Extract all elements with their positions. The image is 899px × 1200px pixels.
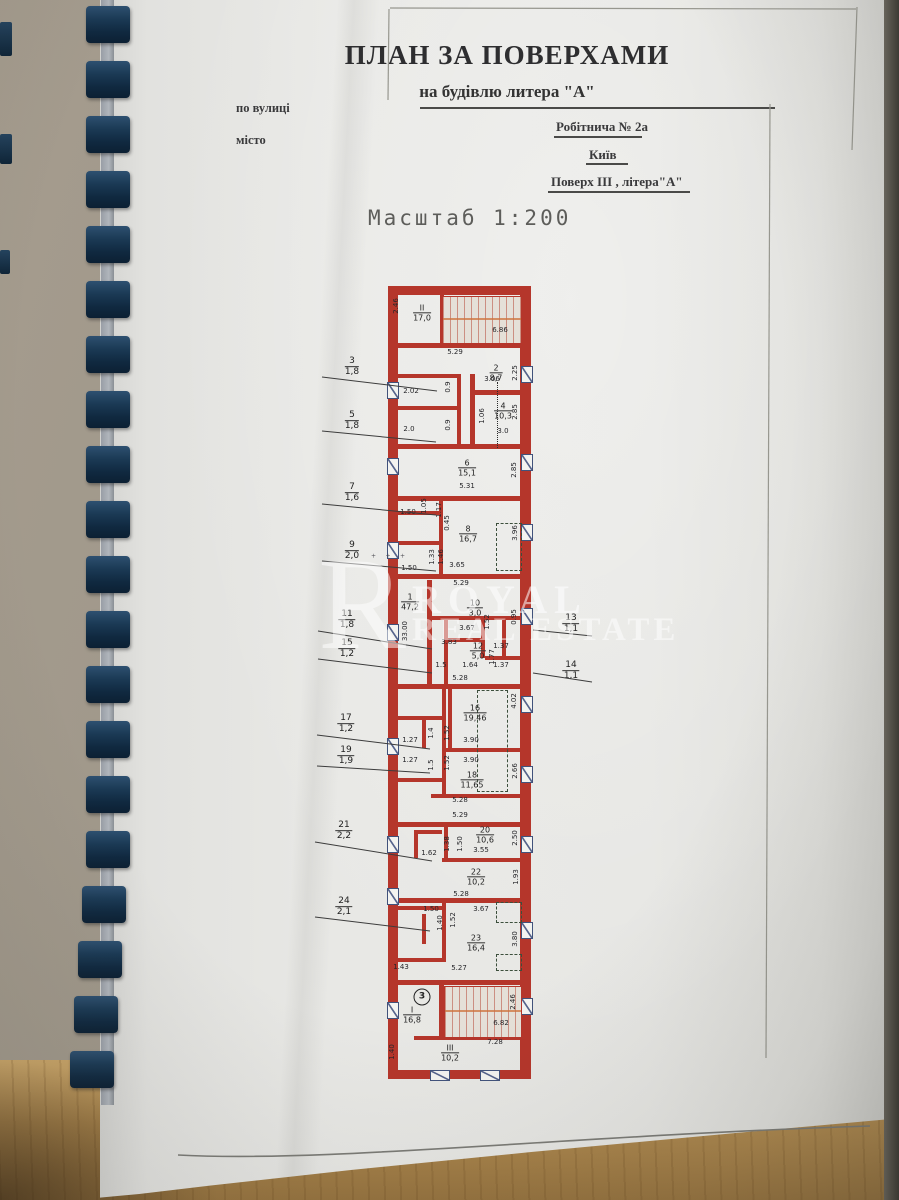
- dimension-label: 3.67: [473, 905, 489, 913]
- dimension-label: 3.90: [463, 756, 479, 764]
- wall-segment: [397, 374, 461, 378]
- room-label: ІІІ10,2: [441, 1043, 459, 1062]
- dimension-label-vertical: 2.25: [511, 365, 519, 381]
- room-number: ІІ: [413, 303, 431, 313]
- dimension-label-vertical: 4.02: [510, 693, 518, 709]
- binding-tooth: [86, 171, 130, 208]
- room-number: 20: [476, 825, 494, 835]
- wall-segment: [397, 958, 444, 962]
- window-symbol: [521, 766, 533, 783]
- window-symbol: [521, 998, 533, 1015]
- dimension-label-vertical: 1.52: [483, 614, 491, 630]
- room-number: 2: [490, 363, 503, 373]
- binding-tooth: [86, 226, 130, 263]
- dimension-label-vertical: 2.50: [511, 830, 519, 846]
- room-label: 615,1: [458, 458, 476, 477]
- binding-tooth: [86, 556, 130, 593]
- dimension-label: 7.28: [487, 1038, 503, 1046]
- wall-segment: [397, 778, 442, 782]
- room-area: 10,2: [467, 878, 485, 887]
- room-label: 2210,2: [467, 867, 485, 886]
- window-symbol: [521, 922, 533, 939]
- dimension-label: 1.5: [435, 661, 446, 669]
- window-symbol: [387, 738, 399, 755]
- city-underline: [586, 163, 628, 165]
- binding-spine: [101, 0, 114, 1105]
- photo-of-floor-plan-document: { "header": { "title": "ПЛАН ЗА ПОВЕРХАМ…: [0, 0, 899, 1200]
- street-value: Робітнича № 2а: [556, 119, 648, 135]
- room-number: 16: [464, 703, 487, 713]
- dimension-label-vertical: 0.9: [444, 381, 452, 392]
- dimension-label: 5.28: [452, 796, 468, 804]
- binding-tooth: [86, 831, 130, 868]
- binding-edge-mark: [0, 250, 10, 274]
- dimension-label: 2.0: [403, 425, 414, 433]
- window-symbol: [521, 454, 533, 471]
- dimension-label: 5.29: [447, 348, 463, 356]
- dimension-label: 1.50: [401, 564, 417, 572]
- room-label: 125,0: [470, 641, 486, 660]
- dimension-label: 6.82: [493, 1019, 509, 1027]
- binding-tooth: [86, 666, 130, 703]
- dimension-label: 3.0: [497, 427, 508, 435]
- wall-segment: [414, 830, 418, 858]
- room-area: 10,2: [441, 1054, 459, 1063]
- dimension-label-vertical: 1.52: [443, 755, 451, 771]
- window-symbol: [521, 696, 533, 713]
- room-number: 12: [470, 641, 486, 651]
- dimension-label-vertical: 1.05: [420, 498, 428, 514]
- floor-plan-drawing: 6.865.293.062.022.03.05.311.503.651.505.…: [384, 286, 536, 1086]
- balcony-dashed-outline: [496, 954, 522, 971]
- wall-segment: [444, 616, 448, 684]
- dimension-label: 1.64: [462, 661, 478, 669]
- binding-tooth: [86, 501, 130, 538]
- binding-edge-mark: [0, 134, 12, 164]
- wall-segment: [388, 286, 531, 295]
- wall-segment: [414, 830, 442, 834]
- dimension-label-vertical: 1.93: [512, 869, 520, 885]
- room-number: 1: [401, 592, 419, 602]
- room-number: 4: [494, 401, 512, 411]
- room-area: 17,0: [413, 314, 431, 323]
- room-number: І: [403, 1005, 421, 1015]
- window-symbol: [387, 542, 399, 559]
- floor-underline: [548, 191, 690, 193]
- binding-tooth: [86, 281, 130, 318]
- dimension-label: 1.27: [402, 756, 418, 764]
- room-number: 6: [458, 458, 476, 468]
- street-field-label: по вулиці: [236, 101, 290, 116]
- window-symbol: [387, 624, 399, 641]
- dimension-label-vertical: 1.06: [478, 408, 486, 424]
- binding-tooth: [86, 611, 130, 648]
- room-label: ІІ17,0: [413, 303, 431, 322]
- dimension-label-vertical: 1.38: [443, 836, 451, 852]
- dimension-label: 5.28: [452, 674, 468, 682]
- window-symbol: [387, 458, 399, 475]
- window-symbol: [521, 524, 533, 541]
- room-number: 22: [467, 867, 485, 877]
- wall-segment: [427, 580, 432, 684]
- room-label: 147,2: [401, 592, 419, 611]
- window-symbol: [387, 382, 399, 399]
- dimension-label: 3.90: [463, 736, 479, 744]
- dimension-label: 3.65: [449, 561, 465, 569]
- room-area: 19,46: [464, 714, 487, 723]
- dimension-label: 1.43: [393, 963, 409, 971]
- dimension-label-vertical: 2.66: [511, 763, 519, 779]
- dimension-label-vertical: 1.52: [449, 912, 457, 928]
- binding-tooth: [74, 996, 118, 1033]
- room-area: 47,2: [401, 603, 419, 612]
- room-label: 1811,65: [461, 770, 484, 789]
- room-label: І16,8: [403, 1005, 421, 1024]
- dimension-label: 1.50: [423, 905, 439, 913]
- dimension-label: 2.02: [403, 387, 419, 395]
- page-title: ПЛАН ЗА ПОВЕРХАМИ: [307, 40, 707, 71]
- wall-segment: [457, 374, 461, 446]
- room-number: 10: [467, 598, 483, 608]
- room-area: 11,65: [461, 781, 484, 790]
- binding-tooth: [86, 776, 130, 813]
- dimension-label: 3.67: [459, 624, 475, 632]
- window-symbol: [430, 1070, 450, 1081]
- dimension-label: 3.83: [441, 638, 457, 646]
- room-number: 18: [461, 770, 484, 780]
- room-area: 8,7: [490, 374, 503, 383]
- dimension-label: 5.27: [451, 964, 467, 972]
- wall-segment: [397, 684, 521, 689]
- room-area: 15,1: [458, 469, 476, 478]
- room-area: 10,6: [476, 836, 494, 845]
- wall-segment: [431, 794, 521, 798]
- dimension-label-vertical: 1.5: [427, 759, 435, 770]
- dimension-label-vertical: 33.00: [401, 621, 409, 641]
- page-subtitle: на будівлю литера "А": [307, 82, 707, 102]
- binding-tooth: [86, 336, 130, 373]
- dimension-label: 5.31: [459, 482, 475, 490]
- room-number: ІІІ: [441, 1043, 459, 1053]
- dimension-label: 1.62: [421, 849, 437, 857]
- dimension-label-vertical: 2.85: [510, 462, 518, 478]
- window-symbol: [387, 1002, 399, 1019]
- dimension-label-vertical: 1.4: [427, 727, 435, 738]
- dimension-label-vertical: 1.40: [388, 1044, 396, 1060]
- room-area: 10,3: [494, 412, 512, 421]
- window-symbol: [387, 836, 399, 853]
- dimension-label-vertical: 0.9: [444, 419, 452, 430]
- dimension-label-vertical: 1.50: [456, 836, 464, 852]
- dimension-label: 1.50: [400, 508, 416, 516]
- binding-tooth: [86, 446, 130, 483]
- wall-segment: [470, 390, 521, 395]
- dimension-label: 6.86: [492, 326, 508, 334]
- wall-segment: [388, 286, 398, 1074]
- dimension-label: 1.27: [402, 736, 418, 744]
- window-symbol: [521, 608, 533, 625]
- wall-segment: [422, 716, 426, 748]
- floor-value: Поверх ІІІ , літера"А": [551, 174, 683, 190]
- city-value: Київ: [589, 147, 617, 163]
- dimension-label-vertical: 2.46: [509, 994, 517, 1010]
- scale-label: Масштаб 1:200: [368, 206, 571, 230]
- room-label: 816,7: [459, 524, 477, 543]
- wall-segment: [397, 980, 521, 985]
- dimension-label: 5.29: [453, 579, 469, 587]
- binding-tooth: [86, 61, 130, 98]
- wall-segment: [397, 716, 442, 720]
- room-label: 2010,6: [476, 825, 494, 844]
- binding-tooth: [86, 116, 130, 153]
- room-label: 1619,46: [464, 703, 487, 722]
- dimension-label-vertical: 1.33: [428, 549, 436, 565]
- binding-tooth: [70, 1051, 114, 1088]
- stairs-hatch: [442, 296, 522, 344]
- dimension-label-vertical: 1.17: [435, 502, 443, 518]
- wall-segment: [502, 620, 506, 656]
- street-underline: [554, 136, 642, 138]
- dimension-label: 5.29: [452, 811, 468, 819]
- wall-segment: [470, 374, 475, 446]
- wall-segment: [422, 914, 426, 944]
- room-label: 103,0: [467, 598, 483, 617]
- room-label: 2316,4: [467, 933, 485, 952]
- wall-segment: [442, 858, 521, 862]
- dimension-label: 3.55: [473, 846, 489, 854]
- balcony-dashed-outline: [496, 902, 522, 923]
- wall-segment: [397, 541, 441, 545]
- dimension-label-vertical: 1.52: [443, 725, 451, 741]
- dimension-label-vertical: 0.95: [510, 609, 518, 625]
- dimension-label-vertical: 2.85: [511, 404, 519, 420]
- dimension-label: 5.28: [453, 890, 469, 898]
- dimension-label-vertical: 2.46: [392, 298, 400, 314]
- dimension-label-vertical: 1.46: [437, 549, 445, 565]
- room-number: 23: [467, 933, 485, 943]
- room-label: 28,7: [490, 363, 503, 382]
- city-field-label: місто: [236, 133, 266, 148]
- room-area: 16,7: [459, 535, 477, 544]
- window-symbol: [480, 1070, 500, 1081]
- room-area: 3,0: [467, 609, 483, 618]
- wall-segment: [397, 406, 461, 410]
- binding-tooth: [82, 886, 126, 923]
- dimension-label-vertical: 3.96: [511, 525, 519, 541]
- dimension-label-vertical: 1.77: [488, 649, 496, 665]
- binding-tooth: [86, 6, 130, 43]
- dimension-label-vertical: 3.80: [511, 931, 519, 947]
- window-symbol: [521, 366, 533, 383]
- room-number: 8: [459, 524, 477, 534]
- binding-tooth: [86, 391, 130, 428]
- room-label: 410,3: [494, 401, 512, 420]
- page-edge-shadow: [884, 0, 899, 1200]
- room-area: 5,0: [470, 652, 486, 661]
- dimension-label-vertical: 1.40: [436, 915, 444, 931]
- binding-edge-mark: [0, 22, 12, 56]
- stairwell-number-circle: 3: [414, 989, 431, 1006]
- wall-segment: [388, 1070, 531, 1079]
- wall-segment: [397, 822, 521, 827]
- header-underline: [420, 107, 775, 109]
- window-symbol: [521, 836, 533, 853]
- window-symbol: [387, 888, 399, 905]
- dimension-label-vertical: 0.45: [443, 515, 451, 531]
- binding-tooth: [86, 721, 130, 758]
- wall-segment: [397, 496, 521, 501]
- binding-tooth: [78, 941, 122, 978]
- room-area: 16,8: [403, 1016, 421, 1025]
- room-area: 16,4: [467, 944, 485, 953]
